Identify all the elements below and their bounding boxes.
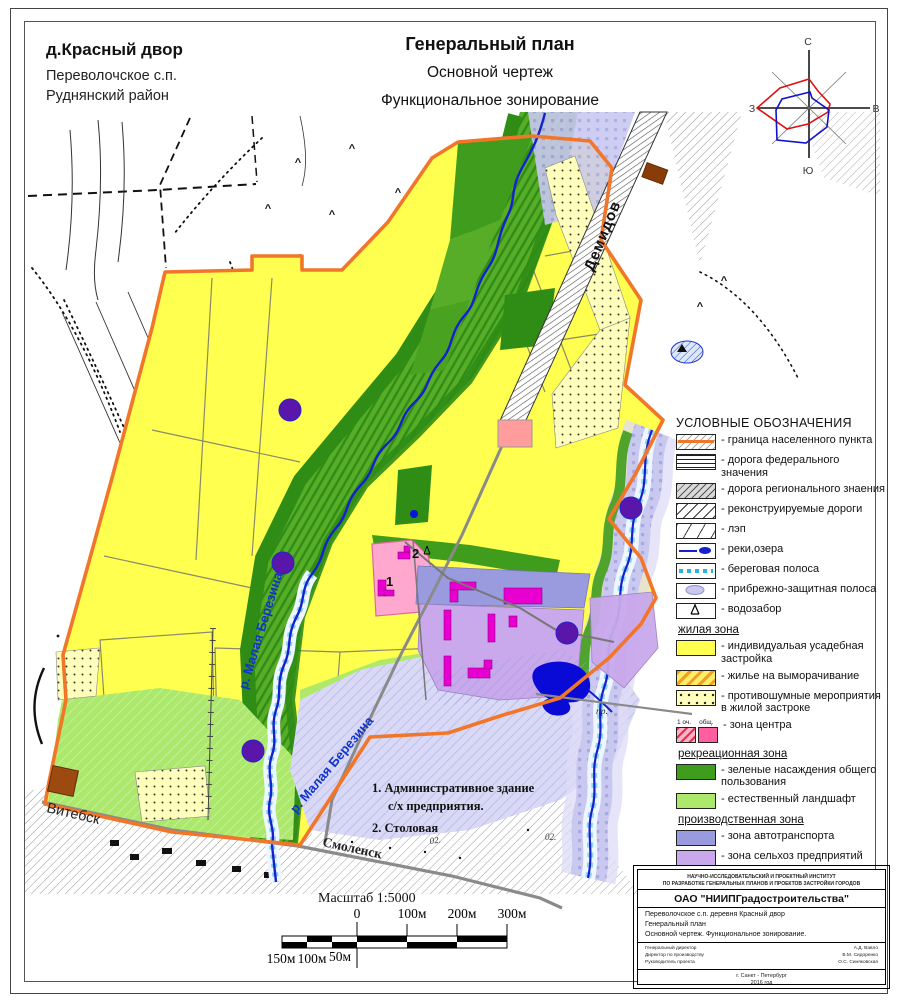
legend-item-vymorachivanie: - жилье на выморачивание <box>676 670 888 686</box>
title-block: Генеральный план Основной чертеж Функцио… <box>290 34 690 110</box>
legend-item-water-intake: - водозабор <box>676 603 888 619</box>
legend-section-recreation: рекреационная зона <box>678 748 888 760</box>
legend-item-public-green: - зеленые насаждения общего пользования <box>676 764 888 789</box>
sig-title-3: Руководитель проекта <box>645 959 704 966</box>
agro-zone-swatch <box>676 850 716 866</box>
individual-housing-swatch <box>676 640 716 656</box>
sig-title-2: Директор по производству <box>645 952 704 959</box>
legend-title: УСЛОВНЫЕ ОБОЗНАЧЕНИЯ <box>676 416 888 430</box>
federal-road-swatch <box>676 454 716 470</box>
public-green-swatch <box>676 764 716 780</box>
vymorachivanie-swatch <box>676 670 716 686</box>
legend-item-agro-zone: - зона сельхоз предприятий <box>676 850 888 866</box>
stamp-signatures: Генеральный директор Директор по произво… <box>638 942 885 970</box>
stamp-institute-line2: ПО РАЗРАБОТКЕ ГЕНЕРАЛЬНЫХ ПЛАНОВ И ПРОЕК… <box>638 881 885 888</box>
centre-zone-hatched-swatch <box>676 727 696 743</box>
legend-item-natural-landscape: - естественный ландшафт <box>676 793 888 809</box>
centre-zone-solid-swatch <box>698 727 718 743</box>
genplan-sheet: ^^^ ^^^ ^^^ ^^^ ^^^ ^^ <box>0 0 900 1000</box>
legend-item-rivers: - реки,озера <box>676 543 888 559</box>
noise-measures-swatch <box>676 690 716 706</box>
sig-name-2: В.М. Сидоренко <box>838 952 878 959</box>
stamp-city: г. Санкт - Петербург <box>638 973 885 981</box>
legend-item-shore-strip: - береговая полоса <box>676 563 888 579</box>
protective-strip-swatch <box>676 583 716 599</box>
centre-zone-swatches: 1 оч. общ. <box>676 719 718 743</box>
natural-landscape-swatch <box>676 793 716 809</box>
stamp-organization: ОАО "НИИПГрадостроительства" <box>638 889 885 908</box>
water-intake-icon <box>676 603 716 619</box>
place-block: д.Красный двор Переволочское с.п. Руднян… <box>46 40 183 109</box>
legend-item-centre-zone: 1 оч. общ. - зона центра <box>676 719 888 743</box>
stamp-project-name: Генеральный план <box>638 918 885 928</box>
legend-item-noise-measures: - противошумные мероприятия в жилой заст… <box>676 690 888 715</box>
transport-zone-swatch <box>676 830 716 846</box>
legend-item-federal-road: - дорога федерального значения <box>676 454 888 479</box>
legend-section-industrial: производственная зона <box>678 814 888 826</box>
stamp-year: 2016 год <box>638 980 885 988</box>
sig-name-1: А.Д. Вавло <box>838 945 878 952</box>
reconstructed-road-swatch <box>676 503 716 519</box>
legend-item-transport-zone: - зона автотранспорта <box>676 830 888 846</box>
page-subtitle-1: Основной чертеж <box>290 64 690 82</box>
centre-stage-label-1: 1 оч. <box>677 719 691 726</box>
title-stamp: НАУЧНО-ИССЛЕДОВАТЕЛЬСКИЙ И ПРОЕКТНЫЙ ИНС… <box>637 869 886 985</box>
place-district: Руднянский район <box>46 88 183 105</box>
centre-stage-label-2: общ. <box>699 719 714 726</box>
page-title: Генеральный план <box>290 34 690 55</box>
legend-item-protective-strip: - прибрежно-защитная полоса <box>676 583 888 599</box>
sig-name-3: О.С. Синяковская <box>838 959 878 966</box>
legend-section-residential: жилая зона <box>678 624 888 636</box>
legend-item-reconstructed-roads: - реконструируемые дороги <box>676 503 888 519</box>
shore-strip-swatch <box>676 563 716 579</box>
stamp-drawing-name: Основной чертеж. Функциональное зонирова… <box>638 928 885 938</box>
legend-item-regional-road: - дорога регионального знаения <box>676 483 888 499</box>
regional-road-swatch <box>676 483 716 499</box>
place-settlement: Переволочское с.п. <box>46 68 183 85</box>
legend-item-individual-housing: - индивидуальая усадебная застройка <box>676 640 888 665</box>
sig-title-1: Генеральный директор <box>645 945 704 952</box>
page-subtitle-2: Функциональное зонирование <box>290 92 690 110</box>
legend-item-power-line: - лэп <box>676 523 888 539</box>
stamp-project-location: Переволочское с.п. деревня Красный двор <box>638 908 885 918</box>
place-title: д.Красный двор <box>46 40 183 60</box>
boundary-swatch <box>676 434 716 450</box>
power-line-swatch <box>676 523 716 539</box>
legend-item-boundary: - граница населенного пункта <box>676 434 888 450</box>
rivers-swatch <box>676 543 716 559</box>
